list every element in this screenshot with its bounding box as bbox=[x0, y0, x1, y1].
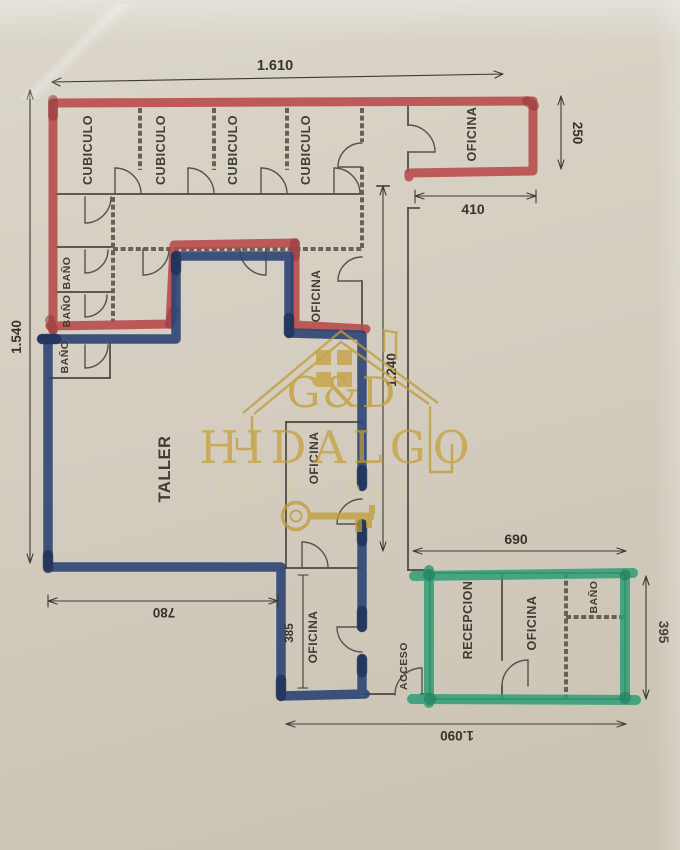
dim-bottom-office: 385 bbox=[284, 623, 296, 643]
dim-taller-width: 780 bbox=[153, 605, 176, 620]
room-label-bano-2: BAÑO bbox=[60, 295, 73, 328]
dim-bottom-total: 1.090 bbox=[440, 728, 474, 743]
dim-reception-width: 690 bbox=[504, 531, 528, 547]
room-label-cubiculo-1: CUBICULO bbox=[81, 115, 95, 185]
watermark-name: HIDALGO bbox=[199, 421, 476, 474]
room-label-bano-1: BAÑO bbox=[60, 257, 73, 290]
room-label-oficina-center: OFICINA bbox=[309, 270, 323, 323]
floor-plan-drawing: 1.610 1.540 250 410 1.240 780 385 690 39… bbox=[0, 0, 680, 850]
watermark-initials: G&D bbox=[287, 368, 398, 417]
watermark: G&D HIDALGO PROPIEDADES bbox=[199, 330, 476, 532]
room-label-acceso: ACCESO bbox=[398, 642, 410, 690]
dim-right-office-width: 410 bbox=[461, 201, 485, 217]
room-label-oficina-reception: OFICINA bbox=[525, 596, 539, 651]
watermark-tagline: PROPIEDADES bbox=[216, 480, 459, 502]
watermark-key-icon bbox=[283, 503, 376, 533]
room-label-taller: TALLER bbox=[156, 436, 174, 503]
green-marker-outline bbox=[412, 570, 636, 703]
dim-reception-depth: 395 bbox=[656, 621, 671, 644]
room-label-oficina-top-right: OFICINA bbox=[465, 107, 479, 162]
room-label-oficina-bottom: OFICINA bbox=[306, 611, 320, 664]
dim-left-total: 1.540 bbox=[9, 320, 24, 354]
room-label-cubiculo-3: CUBICULO bbox=[226, 115, 240, 185]
room-label-bano-reception: BAÑO bbox=[587, 581, 600, 614]
dim-right-office-depth: 250 bbox=[570, 122, 585, 145]
room-label-bano-3: BAÑO bbox=[58, 341, 71, 374]
room-label-recepcion: RECEPCION bbox=[461, 581, 475, 660]
room-label-cubiculo-2: CUBICULO bbox=[154, 115, 168, 185]
dim-top-total: 1.610 bbox=[257, 58, 293, 74]
scanned-floor-plan: 1.610 1.540 250 410 1.240 780 385 690 39… bbox=[0, 0, 680, 850]
room-label-cubiculo-4: CUBICULO bbox=[299, 115, 313, 185]
